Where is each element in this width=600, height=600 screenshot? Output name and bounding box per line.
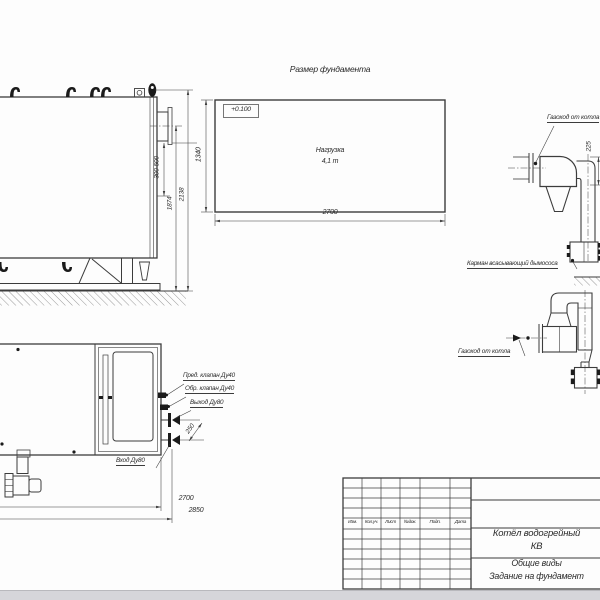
dim-length-total: 2850 bbox=[176, 507, 216, 514]
titleblock-col-data: Дата bbox=[450, 520, 471, 525]
titleblock-col-koluch: Кол.уч. bbox=[362, 520, 381, 525]
flue-top-duct-label: Газоход от котла bbox=[547, 115, 599, 123]
titleblock-product-line2: КВ bbox=[473, 542, 600, 552]
titleblock-doc-line1: Общие виды bbox=[473, 559, 600, 568]
dim-length-body: 2700 bbox=[166, 495, 206, 502]
drawing-linework bbox=[0, 0, 600, 591]
flue-top-pocket-label: Карман всасывающий дымососа bbox=[467, 261, 558, 269]
lifting-hooks bbox=[0, 87, 111, 272]
dim-foundation-width: 2700 bbox=[305, 209, 355, 216]
drawing-sheet: Размер фундамента +0.100 Нагрузка 4,1 т … bbox=[0, 0, 600, 591]
check-valve-label: Обр. клапан Ду40 bbox=[185, 386, 234, 394]
dim-nozzle-range: 300-500 bbox=[155, 148, 162, 186]
lifting-eye bbox=[135, 83, 157, 97]
ground-hatch-left bbox=[0, 291, 188, 306]
side-view-dimensions bbox=[155, 90, 197, 291]
level-mark: +0.100 bbox=[224, 106, 258, 113]
flue-duct-elbow bbox=[506, 290, 600, 394]
titleblock-col-list: Лист bbox=[381, 520, 400, 525]
dim-flue-height: 225 bbox=[587, 134, 594, 158]
titleblock-col-izm: Изм. bbox=[343, 520, 362, 525]
foundation-plan-title: Размер фундамента bbox=[268, 65, 392, 74]
titleblock-doc-line2: Задание на фундамент bbox=[473, 572, 600, 581]
flue-bottom-duct-label: Газоход от котла bbox=[458, 349, 510, 357]
outlet-label: Выход Ду80 bbox=[190, 400, 223, 408]
titleblock-col-podp: Подп. bbox=[420, 520, 450, 525]
burner-assembly bbox=[5, 450, 41, 497]
flue-nozzle bbox=[150, 108, 183, 145]
safety-valve-label: Пред. клапан Ду40 bbox=[183, 373, 235, 381]
load-value: 4,1 т bbox=[300, 158, 360, 165]
load-label: Нагрузка bbox=[300, 147, 360, 154]
dim-height-axis: 1874 bbox=[168, 189, 175, 217]
plan-view-dimensions bbox=[0, 449, 172, 523]
titleblock-product-line1: Котёл водогрейный bbox=[473, 529, 600, 539]
dim-total-height: 2138 bbox=[180, 180, 187, 208]
support-frame bbox=[0, 258, 160, 290]
dim-foundation-depth: 1340 bbox=[195, 139, 202, 171]
inlet-label: Вход Ду80 bbox=[116, 458, 145, 466]
titleblock-col-ndok: №док. bbox=[400, 520, 420, 525]
